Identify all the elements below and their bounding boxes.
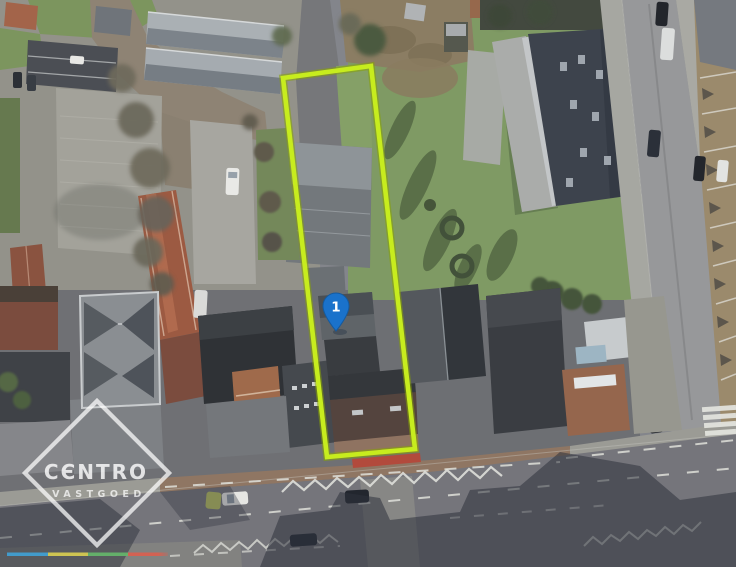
bar-segment-green	[88, 553, 128, 557]
car	[655, 2, 669, 27]
garden-shed	[404, 3, 426, 22]
car	[27, 75, 36, 91]
villa-roof	[80, 292, 160, 408]
marker-label: 1	[331, 300, 340, 316]
brand-text: CЄNTRO	[44, 460, 148, 484]
van	[193, 290, 207, 319]
dark-roof-building	[26, 40, 118, 92]
car	[716, 160, 729, 183]
aerial-photo: 1 CЄNTRO VASTGOED	[0, 0, 736, 567]
van	[660, 28, 675, 61]
brand-color-bar	[7, 553, 168, 557]
car	[647, 130, 661, 158]
orange-roof-house	[4, 2, 38, 30]
car	[13, 72, 22, 88]
tagline-text: VASTGOED	[52, 489, 146, 500]
car	[693, 156, 706, 182]
orange-flat-building	[562, 364, 630, 436]
bar-segment-yellow	[48, 553, 88, 557]
gray-shed	[94, 6, 132, 36]
bar-segment-red	[128, 553, 168, 557]
aerial-scene: 1 CЄNTRO VASTGOED	[0, 0, 736, 567]
concrete-driveway	[190, 120, 256, 284]
bar-segment-blue	[7, 553, 48, 557]
car	[70, 56, 85, 65]
car	[226, 168, 240, 195]
